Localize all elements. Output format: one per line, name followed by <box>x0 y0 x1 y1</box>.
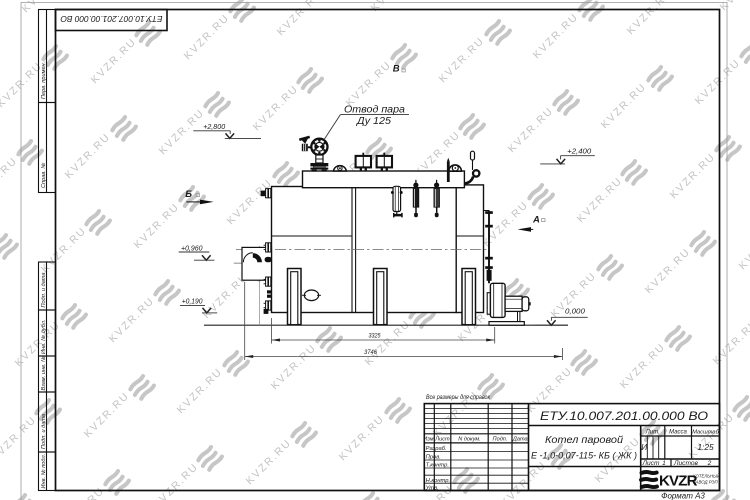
svg-text:+2,400: +2,400 <box>567 146 592 155</box>
svg-text:Лист: Лист <box>434 437 450 443</box>
svg-text:Подп.: Подп. <box>493 437 508 443</box>
svg-text:+0,190: +0,190 <box>182 297 203 306</box>
svg-text:Формат А3: Формат А3 <box>661 492 705 500</box>
svg-text:Инв. № подл.: Инв. № подл. <box>41 454 47 489</box>
svg-text:Б: Б <box>185 189 192 200</box>
svg-text:Разраб.: Разраб. <box>426 446 447 452</box>
svg-text:В: В <box>393 64 400 75</box>
svg-text:3746: 3746 <box>364 349 377 356</box>
svg-text:Отвод пара: Отвод пара <box>344 105 406 116</box>
svg-text:N докум.: N докум. <box>458 437 481 443</box>
svg-text:Листов: Листов <box>673 460 699 467</box>
svg-text:Инв. № дубл.: Инв. № дубл. <box>41 320 47 354</box>
svg-text:Перв. примен.: Перв. примен. <box>41 62 47 99</box>
svg-text:1: 1 <box>662 460 666 467</box>
svg-text:Н.контр.: Н.контр. <box>426 478 451 484</box>
svg-text:Взам. инв. №: Взам. инв. № <box>41 356 47 391</box>
svg-text:+0,960: +0,960 <box>181 243 203 252</box>
svg-text:Лист: Лист <box>642 460 660 467</box>
svg-text:Т.контр.: Т.контр. <box>426 463 449 469</box>
svg-text:Пров.: Пров. <box>426 455 441 461</box>
svg-text:KVZR: KVZR <box>659 473 698 490</box>
svg-text:И: И <box>641 442 647 452</box>
svg-text:Масштаб: Масштаб <box>692 429 719 435</box>
svg-text:Лит.: Лит. <box>645 429 660 435</box>
svg-text:Масса: Масса <box>669 429 687 435</box>
svg-text:ЕТУ.10.007.201.00.000 ВО: ЕТУ.10.007.201.00.000 ВО <box>60 14 162 24</box>
svg-text:КОТЕЛЬНЫЙ: КОТЕЛЬНЫЙ <box>693 474 721 479</box>
svg-text:3325: 3325 <box>369 333 381 340</box>
svg-text:Изм.: Изм. <box>423 437 435 443</box>
svg-text:Утв.: Утв. <box>425 486 439 492</box>
svg-text:+2,800: +2,800 <box>203 122 226 131</box>
svg-text:Е -1,0-0,07-115- КБ ( ЖК ): Е -1,0-0,07-115- КБ ( ЖК ) <box>531 451 637 461</box>
svg-text:Дата: Дата <box>512 437 528 443</box>
svg-text:2: 2 <box>707 460 712 467</box>
svg-text:Котел паровой: Котел паровой <box>545 435 624 446</box>
svg-text:ЕТУ.10.007.201.00.000 ВО: ЕТУ.10.007.201.00.000 ВО <box>540 409 708 423</box>
svg-text:0,000: 0,000 <box>565 306 586 315</box>
svg-text:ЗАВОД РЭП: ЗАВОД РЭП <box>693 480 719 485</box>
svg-text:Все размеры для справок: Все размеры для справок <box>426 393 491 401</box>
svg-text:Справ. №: Справ. № <box>41 163 47 188</box>
svg-text:Ду 125: Ду 125 <box>356 116 392 127</box>
svg-text:1:25: 1:25 <box>697 442 714 452</box>
svg-text:Подп. и дата: Подп. и дата <box>41 414 47 449</box>
svg-text:А: А <box>532 215 540 226</box>
svg-text:Подп. и дата: Подп. и дата <box>41 272 47 307</box>
